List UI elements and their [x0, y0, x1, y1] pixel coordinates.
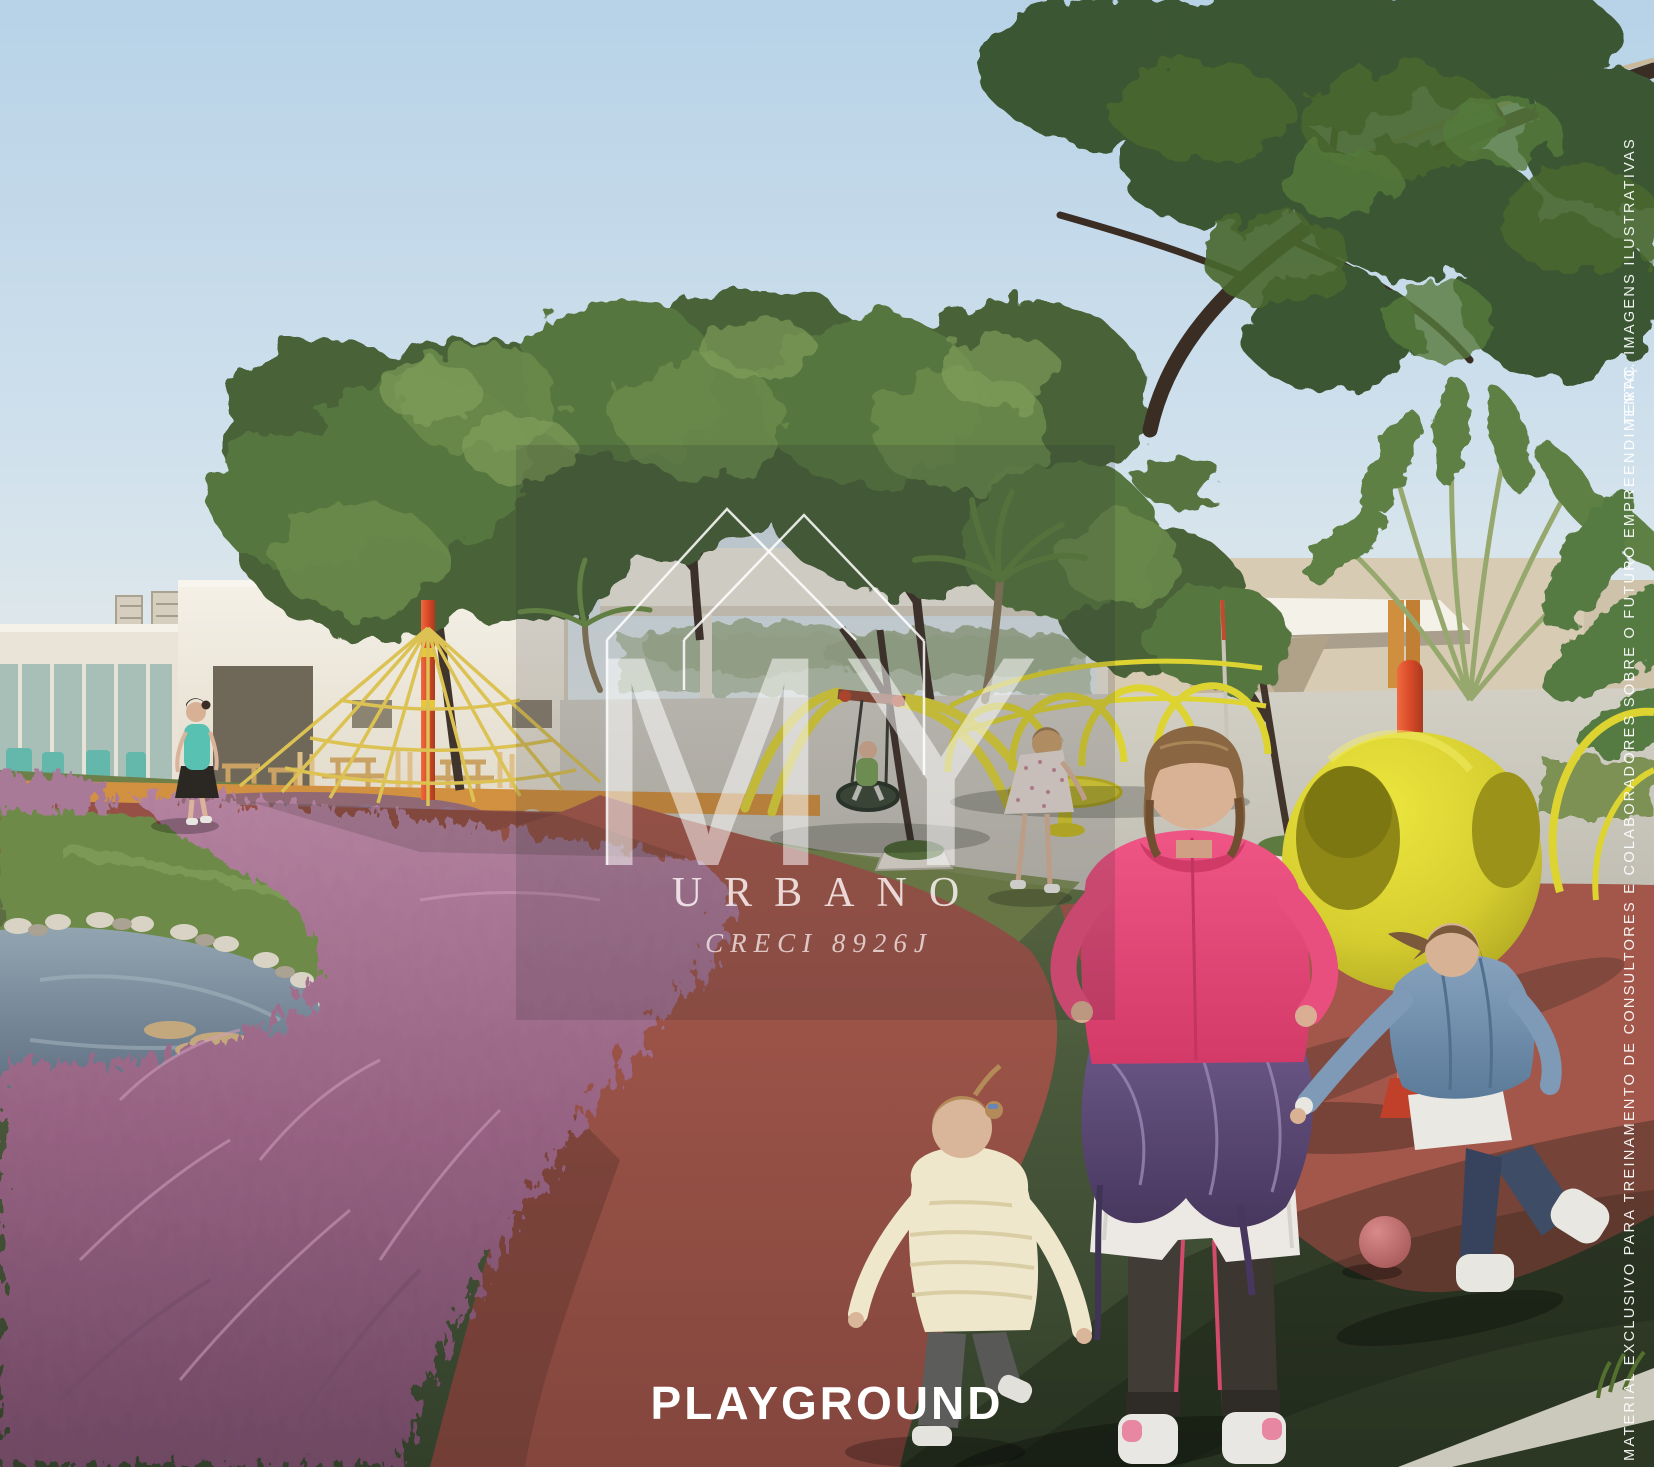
pod-hole: [1472, 772, 1540, 888]
image-caption: PLAYGROUND: [0, 1376, 1654, 1430]
vertical-disclaimer: MATERIAL EXCLUSIVO PARA TREINAMENTO DE C…: [1622, 137, 1638, 1461]
rendered-playground-image: MY URBANO CRECI 8926J PLAYGROUND MATERIA…: [0, 0, 1654, 1467]
vertical-disclaimer-fragment: TERAÇ: [1622, 364, 1638, 425]
license-number: CRECI 8926J: [516, 928, 1115, 959]
denim-jacket: [1390, 955, 1535, 1099]
brand-name: URBANO: [516, 869, 1115, 917]
watermark-box: MY URBANO CRECI 8926J: [516, 445, 1115, 1020]
striped-sweater: [909, 1146, 1038, 1332]
